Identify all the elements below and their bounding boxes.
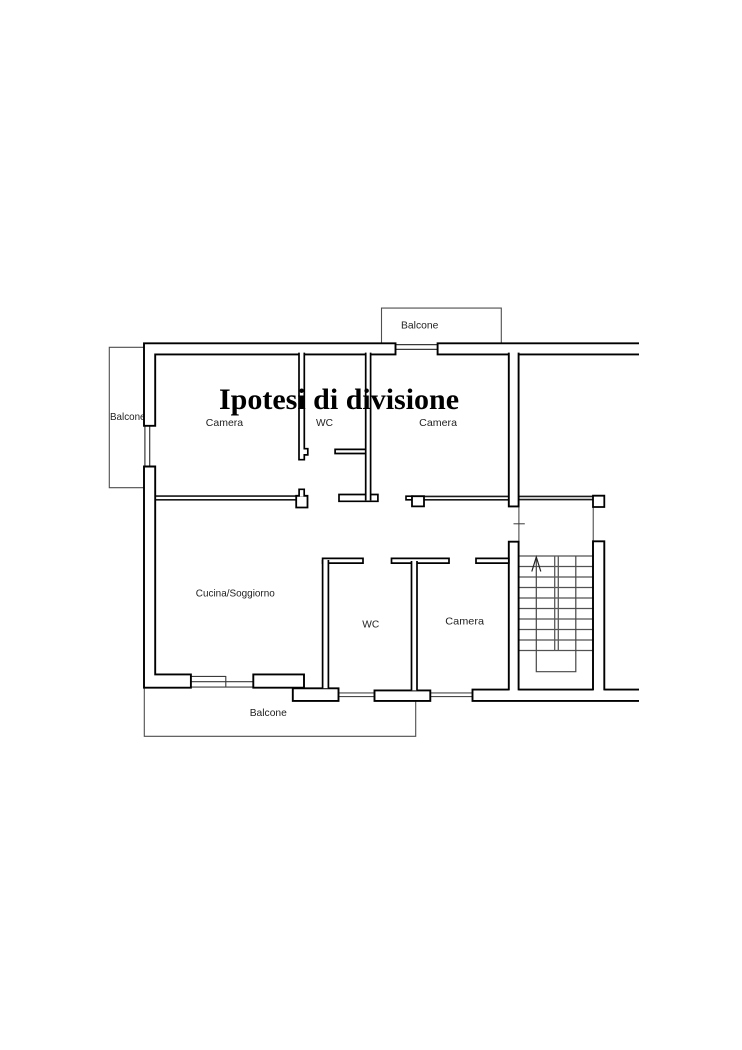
svg-text:Balcone: Balcone xyxy=(401,321,439,332)
svg-text:Balcone: Balcone xyxy=(110,412,146,423)
svg-text:WC: WC xyxy=(362,619,380,630)
svg-text:Balcone: Balcone xyxy=(250,708,287,719)
svg-text:Camera: Camera xyxy=(419,418,457,429)
svg-text:Cucina/Soggiorno: Cucina/Soggiorno xyxy=(196,588,275,599)
svg-text:WC: WC xyxy=(316,418,334,429)
svg-text:Ipotesi di divisione: Ipotesi di divisione xyxy=(219,383,459,416)
svg-text:Camera: Camera xyxy=(206,418,244,429)
svg-text:Camera: Camera xyxy=(445,617,484,628)
